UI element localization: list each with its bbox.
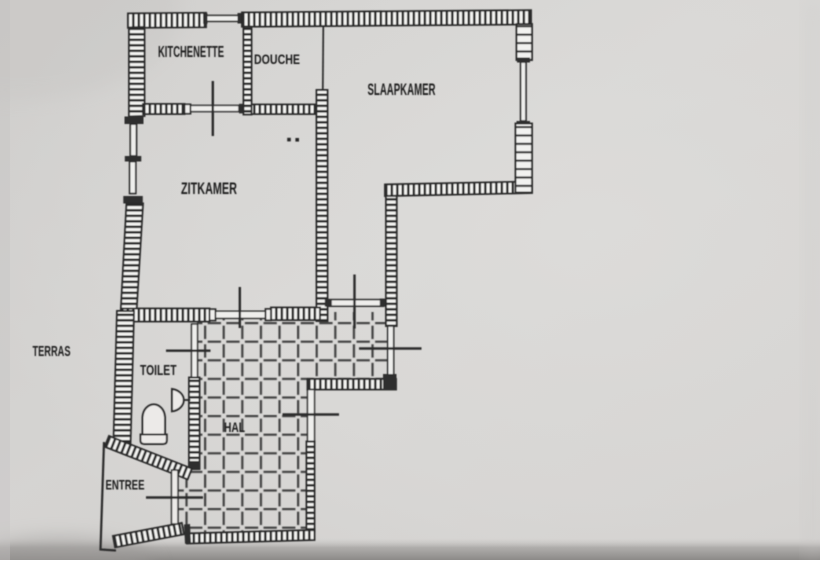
svg-text:KITCHENETTE: KITCHENETTE <box>158 44 224 61</box>
svg-text:DOUCHE: DOUCHE <box>254 51 300 67</box>
svg-text:TOILET: TOILET <box>140 362 177 379</box>
svg-text:HAL: HAL <box>224 420 245 435</box>
svg-text:ENTREE: ENTREE <box>106 477 145 493</box>
svg-text:SLAAPKAMER: SLAAPKAMER <box>368 81 436 99</box>
svg-text:ZITKAMER: ZITKAMER <box>181 180 237 198</box>
svg-text:TERRAS: TERRAS <box>33 344 71 360</box>
